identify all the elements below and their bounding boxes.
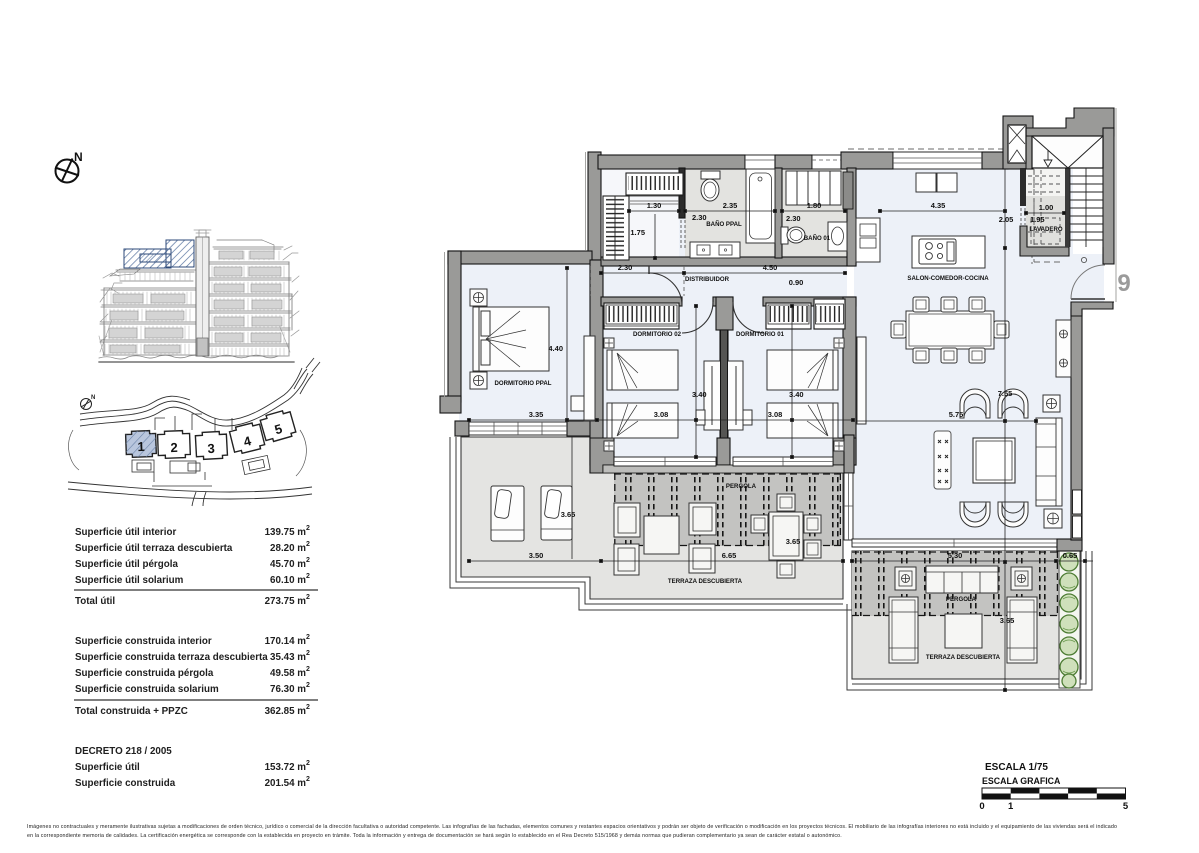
svg-text:N: N	[91, 395, 95, 401]
svg-text:1.00: 1.00	[1039, 203, 1054, 212]
svg-text:1: 1	[1008, 801, 1014, 812]
svg-text:2: 2	[306, 557, 310, 564]
svg-text:DORMITORIO PPAL: DORMITORIO PPAL	[495, 380, 552, 387]
svg-text:5.75: 5.75	[949, 410, 964, 419]
svg-text:DORMITORIO 01: DORMITORIO 01	[736, 331, 785, 338]
svg-text:LAVADERO: LAVADERO	[1029, 226, 1063, 233]
svg-text:1.95: 1.95	[1030, 215, 1045, 224]
svg-text:3.65: 3.65	[786, 537, 801, 546]
svg-text:BAÑO 01: BAÑO 01	[804, 235, 831, 242]
svg-text:TERRAZA DESCUBIERTA: TERRAZA DESCUBIERTA	[926, 654, 1001, 661]
svg-text:4.40: 4.40	[548, 344, 563, 353]
svg-text:1: 1	[137, 439, 145, 454]
svg-text:DISTRIBUIDOR: DISTRIBUIDOR	[685, 276, 730, 283]
svg-text:3.08: 3.08	[768, 410, 783, 419]
svg-text:Superficie construida: Superficie construida	[75, 778, 176, 789]
svg-text:3.65: 3.65	[561, 510, 576, 519]
svg-text:0.90: 0.90	[789, 278, 804, 287]
svg-text:7.55: 7.55	[998, 389, 1013, 398]
svg-text:3: 3	[207, 441, 215, 456]
svg-text:35.43 m: 35.43 m	[270, 652, 306, 663]
svg-text:2: 2	[170, 440, 178, 455]
svg-text:3.08: 3.08	[654, 410, 669, 419]
svg-text:DORMITORIO 02: DORMITORIO 02	[633, 331, 682, 338]
svg-text:3.35: 3.35	[529, 410, 544, 419]
svg-text:5.30: 5.30	[948, 551, 963, 560]
svg-text:en la correspondiente memoria: en la correspondiente memoria de calidad…	[27, 833, 842, 839]
svg-text:201.54 m: 201.54 m	[265, 778, 307, 789]
svg-text:362.85 m: 362.85 m	[265, 706, 307, 717]
svg-text:6.65: 6.65	[722, 551, 737, 560]
svg-text:2: 2	[306, 594, 310, 601]
svg-text:ESCALA 1/75: ESCALA 1/75	[985, 762, 1048, 773]
svg-text:2.35: 2.35	[723, 201, 738, 210]
svg-text:60.10 m: 60.10 m	[270, 575, 306, 586]
svg-text:4.50: 4.50	[763, 263, 778, 272]
svg-text:3.40: 3.40	[789, 390, 804, 399]
svg-text:PERGOLA: PERGOLA	[726, 483, 757, 490]
svg-text:2: 2	[306, 760, 310, 767]
svg-text:ESCALA GRAFICA: ESCALA GRAFICA	[982, 776, 1061, 786]
svg-text:2: 2	[306, 776, 310, 783]
svg-text:Total útil: Total útil	[75, 596, 115, 607]
svg-text:45.70 m: 45.70 m	[270, 559, 306, 570]
svg-text:2: 2	[306, 634, 310, 641]
svg-text:2: 2	[306, 704, 310, 711]
svg-text:Superficie útil terraza descub: Superficie útil terraza descubierta	[75, 543, 233, 554]
svg-text:2: 2	[306, 525, 310, 532]
svg-text:Superficie útil solarium: Superficie útil solarium	[75, 575, 184, 586]
svg-text:9: 9	[1117, 270, 1130, 297]
svg-text:2.30: 2.30	[692, 213, 707, 222]
svg-text:2.30: 2.30	[786, 214, 801, 223]
svg-text:1.80: 1.80	[807, 201, 822, 210]
svg-text:Superficie útil interior: Superficie útil interior	[75, 527, 176, 538]
svg-text:49.58 m: 49.58 m	[270, 668, 306, 679]
svg-text:2: 2	[306, 682, 310, 689]
svg-text:Superficie construida interior: Superficie construida interior	[75, 636, 212, 647]
svg-text:5: 5	[1123, 801, 1129, 812]
svg-text:2.30: 2.30	[618, 263, 633, 272]
svg-text:3.50: 3.50	[529, 551, 544, 560]
svg-text:1.75: 1.75	[630, 228, 645, 237]
svg-text:3.40: 3.40	[692, 390, 707, 399]
svg-text:DECRETO 218 / 2005: DECRETO 218 / 2005	[75, 746, 172, 757]
svg-text:76.30 m: 76.30 m	[270, 684, 306, 695]
svg-text:PERGOLA: PERGOLA	[946, 596, 977, 603]
svg-text:153.72 m: 153.72 m	[265, 762, 307, 773]
svg-text:Total construida + PPZC: Total construida + PPZC	[75, 706, 188, 717]
svg-text:0: 0	[979, 801, 984, 812]
svg-text:Superficie útil: Superficie útil	[75, 762, 140, 773]
svg-text:BAÑO PPAL: BAÑO PPAL	[706, 221, 742, 228]
svg-text:Superficie útil pérgola: Superficie útil pérgola	[75, 559, 178, 570]
svg-text:Superficie construida pérgola: Superficie construida pérgola	[75, 668, 214, 679]
svg-text:2: 2	[306, 666, 310, 673]
svg-text:1.30: 1.30	[647, 201, 662, 210]
svg-text:170.14 m: 170.14 m	[265, 636, 307, 647]
svg-text:Superficie construida solarium: Superficie construida solarium	[75, 684, 219, 695]
svg-text:SALON-COMEDOR-COCINA: SALON-COMEDOR-COCINA	[907, 275, 989, 282]
svg-text:0.65: 0.65	[1063, 551, 1078, 560]
svg-text:Imágenes no contractuales y me: Imágenes no contractuales y meramente il…	[27, 824, 1117, 830]
svg-text:Superficie construida terraza: Superficie construida terraza descubiert…	[75, 652, 268, 663]
svg-text:2: 2	[306, 650, 310, 657]
svg-text:3.65: 3.65	[1000, 616, 1015, 625]
svg-text:139.75 m: 139.75 m	[265, 527, 307, 538]
svg-text:4.35: 4.35	[931, 201, 946, 210]
svg-text:2: 2	[306, 573, 310, 580]
svg-text:TERRAZA DESCUBIERTA: TERRAZA DESCUBIERTA	[668, 578, 743, 585]
svg-text:28.20 m: 28.20 m	[270, 543, 306, 554]
svg-text:2.05: 2.05	[999, 215, 1014, 224]
svg-text:2: 2	[306, 541, 310, 548]
svg-text:N: N	[74, 150, 83, 164]
svg-text:273.75 m: 273.75 m	[265, 596, 307, 607]
